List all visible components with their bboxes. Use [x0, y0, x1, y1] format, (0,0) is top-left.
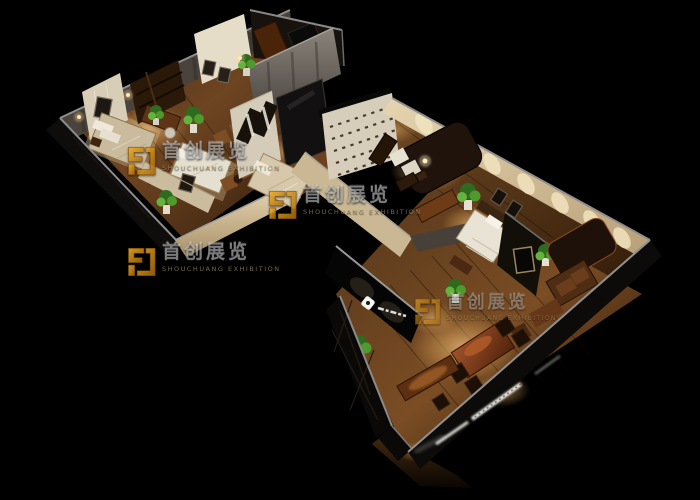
- showroom-scene: 首创展览 SHOUCHUANG EXHIBITION 首创展览 SHOUCHUA…: [0, 0, 700, 500]
- desk-chair: [165, 128, 176, 139]
- drawer-cabinet-wall: [318, 88, 399, 180]
- picture-frame: [202, 60, 216, 76]
- picture-frame: [217, 67, 231, 83]
- showroom-3d-render: [0, 0, 700, 500]
- picture-frame: [513, 247, 534, 273]
